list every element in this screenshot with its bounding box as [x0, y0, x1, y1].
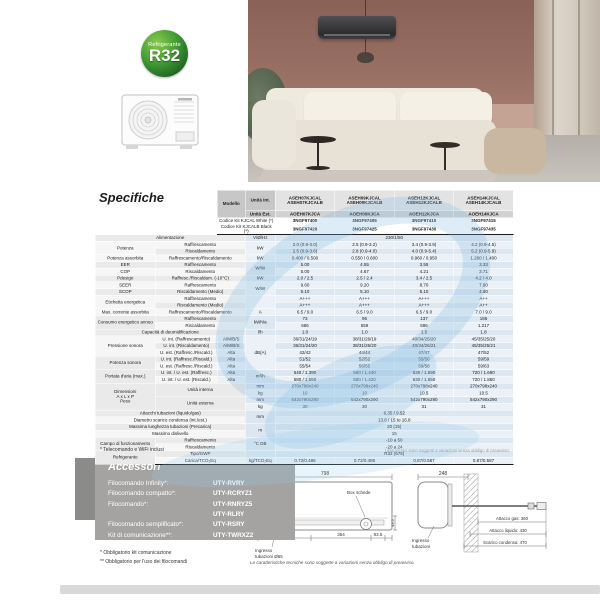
spec-value-cell: 56/55 [335, 363, 395, 370]
spec-value-cell: A+++ [275, 302, 335, 309]
spec-value-cell: 15 [275, 430, 513, 437]
spec-label-cell: Raffrescamento [155, 295, 245, 302]
spec-value-cell: 10.5 [394, 390, 454, 397]
spec-label-cell: Alta [217, 349, 245, 356]
spec-value-cell: 36/31/24/20 [275, 343, 335, 350]
spec-value-cell: 3.55 [394, 262, 454, 269]
spec-label-cell: Riscaldamento [155, 444, 245, 451]
spec-label-cell: ASEH09KJCAL ASEH09KJCALB [335, 190, 395, 211]
accessori-item: Kit di comunicazione**:UTY-TWRXZ2 [108, 532, 295, 540]
spec-value-cell: 10 [275, 390, 335, 397]
spec-label-cell: kW [245, 255, 275, 262]
spec-value-cell: 2.5 (0.9-3.6) [275, 248, 335, 255]
spec-label-cell: U. int. / U. est. (Raffresc.) [155, 370, 217, 377]
spec-label-cell: °C DB [245, 437, 275, 451]
spec-label-cell: Potenza assorbita [95, 255, 155, 262]
spec-value-cell: 9.20 [335, 282, 395, 289]
spec-value-cell: 4.2 / 4.0 [454, 275, 514, 282]
spec-value-cell: 36/31/24/19 [275, 336, 335, 343]
spec-label-cell: kWh/a [245, 316, 275, 330]
spec-label-cell: Raffrescamento [155, 316, 245, 323]
spec-label-cell: U. int. (Raffresc./Riscald.) [155, 356, 217, 363]
spec-value-cell: 3.33 [454, 262, 514, 269]
dim-attacco-gas: Attacco gas: 360 [496, 516, 529, 521]
spec-value-cell: 59/59 [454, 356, 514, 363]
spec-value-cell: 0.87/0.587 [394, 457, 454, 464]
spec-label-cell: Raffrescamento [155, 241, 245, 248]
spec-value-cell: 0.72/0.486 [275, 457, 335, 464]
spec-label-cell: Codice Kit KJCALB Black (*) [217, 224, 275, 234]
spec-label-cell: Raffrescamento [155, 262, 245, 269]
spec-label-cell: Raffrescamento/Riscaldamento [155, 309, 245, 316]
dim-scarico-condensa: Scarico condensa: 470 [483, 540, 527, 545]
accessori-item: Filocomando compatto*:UTY-RCRYZ1 [108, 490, 295, 498]
spec-value-cell: 1.0 [275, 329, 335, 336]
spec-label-cell: A/M/B/S [217, 343, 245, 350]
side-callout-ingresso-2: tubazioni [412, 544, 430, 549]
spec-label-cell: COP [95, 268, 155, 275]
spec-label-cell: W/W [245, 282, 275, 296]
spec-value-cell: 580 / 1.550 [275, 376, 335, 383]
spec-value-cell: 2.0 (0.9-3.0) [275, 241, 335, 248]
spec-label-cell: U. int. (Riscaldamento) [155, 343, 217, 350]
spec-value-cell: 720 / 1.690 [454, 370, 514, 377]
spec-label-cell: Massima lunghezza tubazioni (Precarica) [95, 424, 245, 431]
spec-label-cell: AOEH09KJCA [335, 211, 395, 218]
spec-label-cell: mm [245, 397, 275, 404]
footnote-disclaimer: I dati tecnici sono soggetti a variazion… [290, 448, 510, 453]
spec-label-cell: Raffrescamento [155, 282, 245, 289]
window-mullion [578, 0, 580, 135]
spec-label-cell: Pdesign [95, 275, 155, 282]
coffee-table-leg [444, 146, 446, 170]
spec-label-cell: EER [95, 262, 155, 269]
spec-label-cell: U. int. / U. est. (Riscald.) [155, 376, 217, 383]
spec-value-cell: 7.90 [454, 282, 514, 289]
spec-value-cell: 5.00 [275, 262, 335, 269]
spec-label-cell [245, 451, 275, 458]
spec-label-cell: Tipo/GWP [155, 451, 245, 458]
spec-value-cell: 40/34/25/21 [394, 343, 454, 350]
spec-value-cell: A+++ [394, 302, 454, 309]
spec-value-cell: 2.0 / 2.5 [275, 275, 335, 282]
spec-label-cell: Unità interna [155, 383, 245, 397]
spec-label-cell: Etichetta energetica [95, 295, 155, 309]
spec-value-cell: 47/47 [394, 349, 454, 356]
spec-value-cell: 6.5 / 9.0 [335, 309, 395, 316]
accessori-item-code: UTY-RLRY [213, 511, 244, 519]
spec-value-cell: 6.5 / 9.0 [275, 309, 335, 316]
spec-label-cell: m [245, 424, 275, 438]
spec-value-cell: 2.5 / 2.4 [335, 275, 395, 282]
spec-label-cell: Riscaldamento (Medio) [155, 302, 245, 309]
spec-label-cell: Dimensioni A x L x P Peso [95, 383, 155, 410]
accessori-item-label: Kit di comunicazione**: [108, 532, 213, 540]
spec-value-cell: 542x790x290 [394, 397, 454, 404]
sofa-armrest [252, 100, 296, 168]
spec-value-cell: 686 [275, 322, 335, 329]
lifestyle-photo [248, 0, 600, 182]
spec-value-cell: 55/56 [394, 356, 454, 363]
accessori-item-code: UTY-RNRYZ5 [213, 501, 252, 509]
spec-value-cell: A+++ [394, 295, 454, 302]
spec-value-cell: 1.0 [335, 329, 395, 336]
spec-value-cell: 7.0 / 9.0 [454, 309, 514, 316]
footnote-remote-wifi: * Telecomando e WiFi inclusi [100, 447, 164, 453]
spec-value-cell: 95 [335, 316, 395, 323]
spec-value-cell: 3.4 (0.9-3.9) [394, 241, 454, 248]
spec-label-cell: Riscaldamento [155, 322, 245, 329]
spec-value-cell: 20 (15) [275, 424, 513, 431]
accessori-tab-decor [75, 458, 97, 520]
spec-label-cell: U. est. (Raffresc./Riscald.) [155, 363, 217, 370]
spec-label-cell: Unità Est. [245, 211, 275, 218]
accessori-item-label: Filocomando Infinity*: [108, 480, 213, 488]
spec-label-cell: mm [245, 383, 275, 390]
spec-label-cell: Massimo dislivello [95, 430, 245, 437]
spec-label-cell: 3NGF97410 [394, 218, 454, 225]
accessori-item: Filocomando semplificato*:UTY-RSRY [108, 521, 295, 529]
spec-sheet-page: Refrigerante R32 Specifiche ModelloUnità… [0, 0, 600, 600]
spec-value-cell: 30 [275, 403, 335, 410]
spec-value-cell: 31 [454, 403, 514, 410]
dim-callout-box-schede: Box schede [347, 490, 371, 495]
spec-value-cell: A+++ [335, 295, 395, 302]
spec-value-cell: 4.55 [335, 262, 395, 269]
refrigerant-badge-value: R32 [141, 48, 188, 63]
spec-value-cell: 31 [394, 403, 454, 410]
spec-value-cell: 45/35/25/21 [454, 343, 514, 350]
spec-value-cell: A+++ [335, 302, 395, 309]
dim-side-depth: 248 [439, 471, 448, 477]
spec-label-cell: 3NGF97405 [335, 218, 395, 225]
spec-value-cell: 2.5 (0.9-3.2) [335, 241, 395, 248]
bottom-bar-decor [60, 585, 600, 594]
accessori-panel: Accessori Filocomando Infinity*:UTY-RVRY… [95, 452, 295, 540]
accessori-notes: * Obbligatorio kit comunicazione ** Obbl… [100, 549, 187, 566]
dim-front-offset: 43.5 [390, 518, 395, 527]
dim-front-width: 798 [321, 471, 330, 477]
spec-value-cell: 6.5 / 9.0 [394, 309, 454, 316]
spec-value-cell: 542x790x290 [454, 397, 514, 404]
spec-label-cell: U. int. (Raffrescamento) [155, 336, 217, 343]
spec-label-cell: m³/h [245, 370, 275, 384]
accessori-note-2: ** Obbligatorio per l'uso dei filocomand… [100, 558, 187, 567]
spec-value-cell: 270x798x240 [335, 383, 395, 390]
spec-value-cell: 270x798x240 [275, 383, 335, 390]
accessori-item-label: Filocomando semplificato*: [108, 521, 213, 529]
brand-mark [178, 98, 192, 101]
spec-label-cell: kg [245, 390, 275, 397]
spec-value-cell: 52/52 [335, 356, 395, 363]
spec-value-cell: 186 [454, 316, 514, 323]
spec-label-cell: V/Ø/Hz [245, 234, 275, 241]
dim-callout-ingresso-2: tubazioni Ø65 [255, 554, 283, 559]
spec-value-cell: 38/31/26/20 [335, 343, 395, 350]
spec-value-cell: 3.4 / 2.5 [394, 275, 454, 282]
spec-label-cell: 3NGF97415 [454, 218, 514, 225]
side-table-base [306, 166, 330, 170]
spec-label-cell: ASEH14KJCAL ASEH14KJCALB [454, 190, 514, 211]
spec-value-cell: 0.960 / 0.950 [394, 255, 454, 262]
spec-value-cell: 47/52 [454, 349, 514, 356]
spec-label-cell: Raffrescamento/Riscaldamento [155, 255, 245, 262]
dim-attacco-liquido: Attacco liquido: 430 [489, 528, 527, 533]
spec-label-cell: kW [245, 275, 275, 282]
spec-value-cell: 270x798x240 [394, 383, 454, 390]
spec-value-cell: 137 [394, 316, 454, 323]
spec-value-cell: 0.87/0.587 [454, 457, 514, 464]
accessori-item: Filocomando Infinity*:UTY-RVRY [108, 480, 295, 488]
spec-value-cell: 30 [335, 403, 395, 410]
spec-label-cell: A/M/B/S [217, 336, 245, 343]
spec-label-cell: Unità Int. [245, 190, 275, 211]
spec-label-cell: AOEH07KJCA [275, 211, 335, 218]
photo-window [534, 0, 600, 135]
spec-label-cell: kg [245, 403, 275, 410]
spec-value-cell: 38/31/26/19 [335, 336, 395, 343]
pendant-lamp [357, 52, 374, 63]
spec-label-cell: Modello [217, 190, 245, 217]
spec-label-cell: Potenza [95, 241, 155, 255]
dimensions-note: Le caratteristiche tecniche sono soggett… [250, 560, 510, 565]
spec-value-cell: 1.217 [454, 322, 514, 329]
spec-value-cell: 4.0 (0.9-5.4) [394, 248, 454, 255]
spec-value-cell: 6.35 / 9.52 [275, 410, 513, 417]
spec-value-cell: 686 [394, 322, 454, 329]
spec-value-cell: 45/35/25/20 [454, 336, 514, 343]
accessori-item: UTY-RLRY [108, 511, 295, 519]
spec-value-cell: 1.260 / 1.400 [454, 255, 514, 262]
side-callout-ingresso-1: Ingresso [412, 538, 430, 543]
accessori-item: Filocomando*:UTY-RNRYZ5 [108, 501, 295, 509]
spec-label-cell: 3NGF97435 [454, 224, 514, 234]
spec-label-cell: Pressione sonora [95, 336, 155, 356]
specs-table-wrapper: ModelloUnità Int.ASEH07KJCAL ASEH07KJCAL… [95, 190, 515, 448]
spec-value-cell: 560 / 1.440 [335, 370, 395, 377]
spec-value-cell: 630 / 1.650 [394, 376, 454, 383]
spec-label-cell: Consumo energetico annuo [95, 316, 155, 330]
spec-value-cell: 1.5 [394, 329, 454, 336]
spec-value-cell: 5.10 [275, 289, 335, 296]
spec-label-cell: ASEH12KJCAL ASEH12KJCALB [394, 190, 454, 211]
spec-label-cell: W/W [245, 262, 275, 276]
spec-value-cell: 13.8 / 15 to 16.8 [275, 417, 513, 424]
spec-label-cell: Riscaldamento [155, 248, 245, 255]
spec-value-cell: 40/34/25/20 [394, 336, 454, 343]
spec-label-cell: Codice Kit KJCAL White (*) [217, 218, 275, 225]
dim-front-d3: 83.5 [374, 532, 383, 537]
accessori-item-code: UTY-TWRXZ2 [213, 532, 253, 540]
outdoor-unit-image [118, 92, 206, 156]
spec-label-cell: Riscaldamento (Medio) [155, 289, 245, 296]
spec-label-cell: kW [245, 241, 275, 255]
spec-value-cell: 4.21 [394, 268, 454, 275]
side-table-leg [317, 140, 319, 168]
accessori-item-label: Filocomando compatto*: [108, 490, 213, 498]
spec-value-cell: 42/42 [275, 349, 335, 356]
accessori-item-label: Filocomando*: [108, 501, 213, 509]
spec-value-cell: 5.00 [275, 268, 335, 275]
spec-value-cell: 9.60 [275, 282, 335, 289]
spec-value-cell: 3.71 [454, 268, 514, 275]
spec-label-cell: A [245, 309, 275, 316]
dim-front-d2: 354 [337, 532, 345, 537]
accessori-item-code: UTY-RSRY [213, 521, 245, 529]
spec-value-cell: 720 / 1.860 [454, 376, 514, 383]
spec-value-cell: 59/63 [454, 363, 514, 370]
spec-label-cell: 3NGF97430 [394, 224, 454, 234]
spec-value-cell: 10.5 [454, 390, 514, 397]
spec-value-cell: 44/44 [335, 349, 395, 356]
spec-label-cell: Alta [217, 363, 245, 370]
spec-value-cell: 230/1/50 [275, 234, 513, 241]
accessori-list: Filocomando Infinity*:UTY-RVRYFilocomand… [95, 480, 295, 540]
spec-value-cell: 4.67 [335, 268, 395, 275]
spec-value-cell: A++ [454, 295, 514, 302]
spec-value-cell: 0.550 / 0.600 [335, 255, 395, 262]
spec-value-cell: 8.70 [394, 282, 454, 289]
spec-label-cell: Alta [217, 370, 245, 377]
spec-value-cell: 5.2 (0.9-5.9) [454, 248, 514, 255]
spec-label-cell: kg/TCO₂Eq [245, 457, 275, 464]
spec-label-cell: Portata d'aria (max.) [95, 370, 155, 384]
spec-value-cell: 55/54 [275, 363, 335, 370]
spec-value-cell: 542x790x290 [335, 397, 395, 404]
spec-value-cell: 580 / 1.420 [335, 376, 395, 383]
spec-label-cell: AOEH12KJCA [394, 211, 454, 218]
spec-value-cell: 270x798x240 [454, 383, 514, 390]
spec-value-cell: -10 a 50 [275, 437, 513, 444]
spec-label-cell: Alta [217, 356, 245, 363]
spec-label-cell: l/h [245, 329, 275, 336]
window-mullion [552, 0, 554, 135]
spec-value-cell: 10 [335, 390, 395, 397]
spec-label-cell: U. est. (Raffresc./Riscald.) [155, 349, 217, 356]
spec-label-cell: 3NGF97400 [275, 218, 335, 225]
accessori-item-code: UTY-RCRYZ1 [213, 490, 252, 498]
spec-value-cell: 630 / 1.690 [394, 370, 454, 377]
accessori-item-code: UTY-RVRY [213, 480, 245, 488]
spec-label-cell: Riscaldamento [155, 268, 245, 275]
spec-label-cell [245, 295, 275, 309]
pouf [484, 128, 546, 174]
spec-value-cell: 5.10 [394, 289, 454, 296]
spec-value-cell: 59/58 [394, 363, 454, 370]
spec-value-cell: 4.2 (0.9-4.5) [454, 241, 514, 248]
spec-value-cell: 540 / 1.390 [275, 370, 335, 377]
spec-label-cell: 3NGF97420 [275, 224, 335, 234]
spec-value-cell: A++ [454, 302, 514, 309]
accessori-note-1: * Obbligatorio kit comunicazione [100, 549, 187, 558]
specs-title: Specifiche [99, 190, 164, 205]
spec-label-cell: 3NGF97425 [335, 224, 395, 234]
spec-label-cell: SCOP [95, 289, 155, 296]
spec-value-cell: 2.8 (0.9-4.0) [335, 248, 395, 255]
refrigerant-badge: Refrigerante R32 [141, 30, 188, 77]
spec-label-cell: Max. corrente assorbita [95, 309, 155, 316]
dim-callout-ingresso-1: Ingresso [255, 548, 273, 553]
spec-value-cell: 542x790x290 [275, 397, 335, 404]
side-view-drawing: 248 Ingresso tubazioni Attacco gas: 360 … [408, 468, 558, 573]
specs-table: ModelloUnità Int.ASEH07KJCAL ASEH07KJCAL… [95, 190, 514, 465]
accessori-item-label [108, 511, 213, 519]
spec-value-cell: 4.60 [454, 289, 514, 296]
spec-label-cell: Raffrescamento [155, 437, 245, 444]
spec-label-cell: Raffresc./Riscaldam. (-10°C) [155, 275, 245, 282]
spec-label-cell: Unità esterna [155, 397, 245, 411]
spec-value-cell: A+++ [275, 295, 335, 302]
spec-value-cell: 1.8 [454, 329, 514, 336]
spec-label-cell: AOEH14KJCA [454, 211, 514, 218]
spec-value-cell: 73 [275, 316, 335, 323]
spec-label-cell: mm [245, 410, 275, 424]
spec-value-cell: 5.10 [335, 289, 395, 296]
spec-label-cell: Attacchi tubazioni (liquido/gas) [95, 410, 245, 417]
spec-label-cell: ASEH07KJCAL ASEH07KJCALB [275, 190, 335, 211]
spec-label-cell: dB(A) [245, 336, 275, 370]
spec-label-cell: Potenza sonora [95, 356, 155, 370]
spec-value-cell: 51/52 [275, 356, 335, 363]
spec-label-cell: Capacità di deumidificazione [95, 329, 245, 336]
spec-value-cell: 0.400 / 0.500 [275, 255, 335, 262]
spec-value-cell: 659 [335, 322, 395, 329]
spec-label-cell: Carica/TCO₂Eq [155, 457, 245, 464]
spec-label-cell: SEER [95, 282, 155, 289]
spec-label-cell: Diametro scarico condensa (int./est.) [95, 417, 245, 424]
spec-label-cell: Alta [217, 376, 245, 383]
indoor-unit-image [318, 16, 396, 39]
spec-value-cell: 0.72/0.486 [335, 457, 395, 464]
spec-label-cell: Alimentazione [95, 234, 245, 241]
